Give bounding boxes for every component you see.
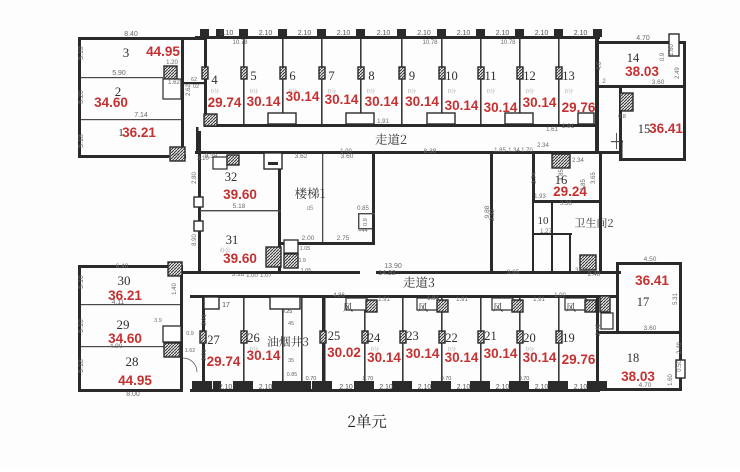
svg-text:3.01: 3.01 [202,349,208,361]
svg-text:4.70: 4.70 [636,35,650,42]
svg-text:5.20: 5.20 [78,90,85,104]
svg-text:1.20: 1.20 [166,60,178,66]
svg-text:10: 10 [538,215,550,227]
svg-text:2.10: 2.10 [259,384,273,391]
svg-text:5.18: 5.18 [78,134,85,148]
svg-text:3.36: 3.36 [560,201,572,207]
svg-text:2.10: 2.10 [259,30,273,37]
svg-text:32: 32 [225,170,238,184]
svg-text:36.41: 36.41 [649,121,683,136]
svg-text:29.74: 29.74 [207,354,241,369]
svg-text:2.10: 2.10 [535,384,549,391]
svg-text:1.60: 1.60 [669,44,675,56]
svg-text:14: 14 [627,51,640,65]
svg-text:2.10: 2.10 [574,384,588,391]
svg-text:0.85: 0.85 [357,206,369,212]
svg-text:3.60: 3.60 [652,79,665,86]
svg-text:4: 4 [211,73,218,87]
svg-text:4.50: 4.50 [644,256,657,263]
svg-text:27: 27 [207,333,220,347]
svg-text:2.10: 2.10 [377,30,391,37]
svg-text:62: 62 [191,77,197,83]
svg-text:d5: d5 [307,206,314,212]
svg-text:0.9: 0.9 [298,258,306,264]
svg-text:30.02: 30.02 [327,345,361,360]
svg-text:2.10: 2.10 [496,384,510,391]
svg-text:0.25: 0.25 [282,309,293,315]
svg-text:2.34: 2.34 [572,158,584,164]
svg-text:29.74: 29.74 [208,95,242,110]
svg-text:39.60: 39.60 [223,187,257,202]
svg-text:5: 5 [250,69,256,83]
svg-text:4.6: 4.6 [597,61,603,70]
svg-text:5.18: 5.18 [233,203,246,210]
svg-text:0.85: 0.85 [287,372,298,378]
svg-text:0.70: 0.70 [363,376,374,382]
svg-text:7.14: 7.14 [134,112,148,119]
svg-text:2.62: 2.62 [186,84,192,96]
svg-text:30: 30 [118,273,131,288]
svg-text:1.91: 1.91 [377,119,389,125]
svg-text:3.01: 3.01 [202,314,208,326]
svg-text:1.93: 1.93 [534,194,546,200]
svg-text:2.10: 2.10 [457,30,471,37]
svg-text:4.11: 4.11 [112,299,125,306]
svg-text:30.14: 30.14 [325,92,359,107]
svg-text:2.34: 2.34 [537,143,549,149]
svg-text:26: 26 [247,331,260,345]
svg-text:1.91: 1.91 [378,297,390,303]
svg-text:36.21: 36.21 [122,125,156,140]
svg-text:3.60: 3.60 [341,153,354,160]
svg-text:4.86: 4.86 [333,293,345,299]
svg-text:6.40: 6.40 [116,263,129,270]
svg-text:4.70: 4.70 [639,382,652,389]
svg-text:4.90: 4.90 [110,343,123,350]
svg-text:5.18: 5.18 [78,359,85,373]
svg-text:2.49: 2.49 [677,342,683,354]
svg-text:13: 13 [562,69,575,83]
svg-text:23: 23 [406,329,419,343]
svg-text:12: 12 [523,69,536,83]
svg-text:3: 3 [123,45,130,60]
svg-text:1.27: 1.27 [540,229,552,235]
svg-text:3.9: 3.9 [154,318,162,324]
svg-text:1.91: 1.91 [456,297,468,303]
svg-text:3.65: 3.65 [507,269,520,276]
svg-text:13.90: 13.90 [384,263,402,270]
svg-text:0.9: 0.9 [363,218,369,226]
svg-text:2.10: 2.10 [298,30,312,37]
svg-text:8.00: 8.00 [126,391,140,398]
svg-text:0.8: 0.8 [618,114,626,120]
svg-text:1.40: 1.40 [172,283,178,295]
svg-text:30.14: 30.14 [445,350,479,365]
svg-text:2.75: 2.75 [337,235,350,242]
svg-text:30.14: 30.14 [247,348,281,363]
svg-text:1.91: 1.91 [427,296,439,302]
svg-text:25: 25 [328,329,341,343]
svg-text:2.00: 2.00 [302,235,315,242]
svg-text:2.10: 2.10 [219,384,233,391]
svg-text:2.10: 2.10 [337,30,351,37]
svg-text:11: 11 [484,69,496,83]
svg-text:1.61: 1.61 [546,127,558,133]
svg-text:5.10: 5.10 [78,46,85,60]
svg-text:9: 9 [409,69,415,83]
svg-text:2.10: 2.10 [457,384,471,391]
svg-text:2.80: 2.80 [192,172,198,184]
svg-text:8: 8 [368,69,374,83]
svg-text:0.70: 0.70 [441,376,452,382]
svg-text:30.14: 30.14 [367,350,401,365]
svg-text:1.91: 1.91 [533,297,545,303]
svg-text:2.32: 2.32 [490,209,496,221]
svg-text:17: 17 [222,302,230,309]
svg-text:39.60: 39.60 [223,251,257,266]
svg-text:34.60: 34.60 [94,95,128,110]
svg-text:29: 29 [117,317,130,332]
svg-text:1.91: 1.91 [562,123,575,130]
svg-text:7: 7 [328,69,334,83]
svg-text:20: 20 [523,331,536,345]
svg-text:2.10: 2.10 [496,30,510,37]
svg-text:3.60: 3.60 [644,325,657,332]
svg-text:0.70: 0.70 [519,376,530,382]
svg-text:3.62: 3.62 [295,153,308,160]
svg-text:2.49: 2.49 [675,67,681,79]
svg-text:1.85: 1.85 [494,148,506,154]
svg-text:35: 35 [288,358,294,364]
svg-text:30.14: 30.14 [523,350,557,365]
svg-text:30.14: 30.14 [445,98,479,113]
svg-text:02: 02 [193,84,199,90]
svg-text:31: 31 [226,233,239,247]
svg-text:10: 10 [445,69,458,83]
svg-text:30.14: 30.14 [523,95,557,110]
svg-text:10.78: 10.78 [422,40,438,46]
svg-text:29.76: 29.76 [562,352,596,367]
svg-text:1.34: 1.34 [508,148,520,154]
svg-text:30.14: 30.14 [247,94,281,109]
svg-text:3.65: 3.65 [591,172,597,184]
svg-text:1.00: 1.00 [554,293,566,299]
svg-text:2.10: 2.10 [574,30,588,37]
svg-text:22: 22 [445,331,458,345]
svg-text:2.10: 2.10 [339,384,353,391]
svg-text:30.14: 30.14 [406,346,440,361]
svg-text:2.10: 2.10 [418,384,432,391]
svg-text:45: 45 [288,321,294,327]
svg-text:5.31: 5.31 [673,293,679,305]
svg-text:8.90: 8.90 [192,234,198,246]
svg-text:14.92: 14.92 [378,270,396,277]
svg-text:1.70: 1.70 [521,148,533,154]
svg-text:1.60: 1.60 [668,374,674,386]
svg-text:0.50: 0.50 [677,360,683,372]
svg-text:21: 21 [484,329,497,343]
svg-text:1.62: 1.62 [185,348,196,354]
svg-text:30.14: 30.14 [484,346,518,361]
svg-text:3.74: 3.74 [532,172,538,184]
svg-text:28: 28 [126,354,139,369]
svg-text:36.41: 36.41 [635,273,669,288]
svg-text:3.85: 3.85 [581,179,587,191]
svg-text:1.62: 1.62 [168,80,180,86]
svg-text:2.40: 2.40 [588,271,601,278]
svg-text:17: 17 [637,295,650,309]
svg-text:44.95: 44.95 [146,44,180,59]
svg-text:2.10: 2.10 [220,30,234,37]
svg-text:1.05: 1.05 [300,246,311,252]
svg-text:30.14: 30.14 [286,89,320,104]
svg-text:8.40: 8.40 [124,31,138,38]
svg-text:30.14: 30.14 [405,94,439,109]
svg-text:1: 1 [118,127,124,139]
svg-text:8.38: 8.38 [424,148,437,155]
svg-text:38.03: 38.03 [625,64,659,79]
svg-text:2.10: 2.10 [379,384,393,391]
svg-text:10.78: 10.78 [500,40,516,46]
svg-text:2.46: 2.46 [596,324,602,336]
svg-text:18: 18 [627,351,640,365]
svg-text:5.10: 5.10 [78,319,85,333]
svg-text:5.90: 5.90 [112,70,126,77]
svg-text:0.9: 0.9 [660,52,666,61]
svg-text:1.05: 1.05 [168,154,180,160]
svg-text:10.78: 10.78 [232,40,248,46]
svg-text:0.9: 0.9 [186,331,194,337]
svg-text:2.10: 2.10 [417,30,431,37]
svg-text:6: 6 [289,69,295,83]
svg-text:30.14: 30.14 [365,94,399,109]
svg-text:24: 24 [368,331,381,345]
svg-text:19: 19 [562,331,575,345]
svg-text:0.70: 0.70 [306,376,317,382]
svg-text:44.95: 44.95 [118,373,152,388]
svg-text:5.10: 5.10 [78,275,85,289]
svg-text:3.10: 3.10 [197,156,209,162]
svg-text:2.10: 2.10 [535,30,549,37]
